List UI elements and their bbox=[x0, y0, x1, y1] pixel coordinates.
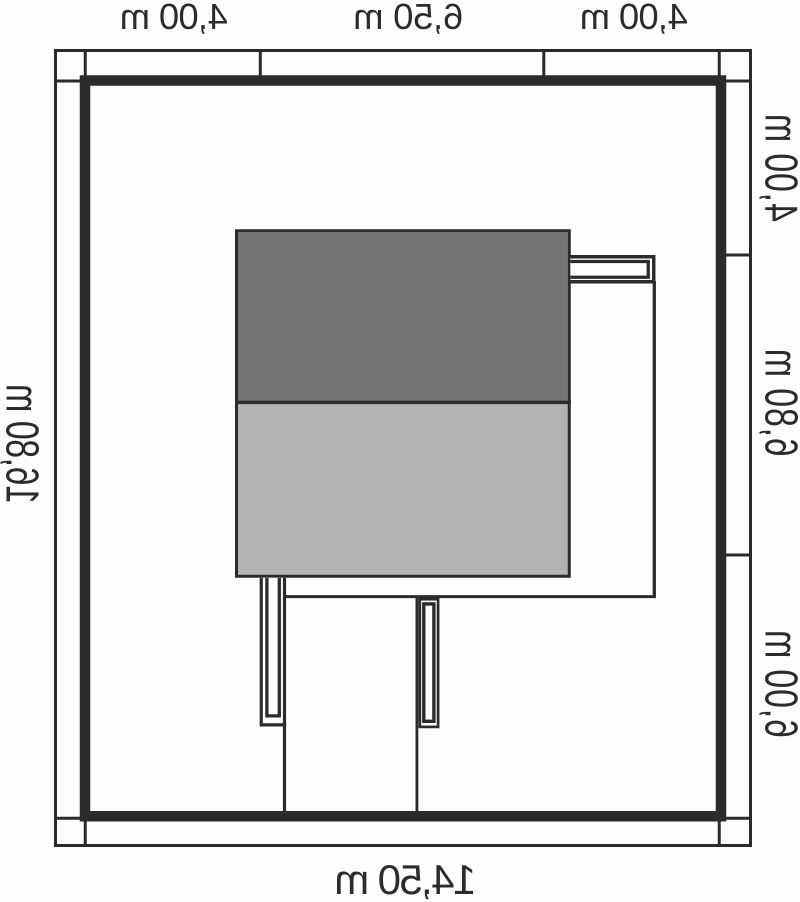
svg-text:6,50 m: 6,50 m bbox=[353, 0, 463, 37]
svg-text:16,80 m: 16,80 m bbox=[0, 384, 49, 504]
svg-text:14,50 m: 14,50 m bbox=[334, 856, 476, 902]
svg-text:6,00 m: 6,00 m bbox=[755, 630, 800, 738]
svg-text:4,00 m: 4,00 m bbox=[580, 0, 688, 37]
svg-text:4,00 m: 4,00 m bbox=[120, 0, 228, 37]
svg-text:6,80 m: 6,80 m bbox=[755, 349, 800, 457]
svg-text:4,00 m: 4,00 m bbox=[755, 114, 800, 222]
